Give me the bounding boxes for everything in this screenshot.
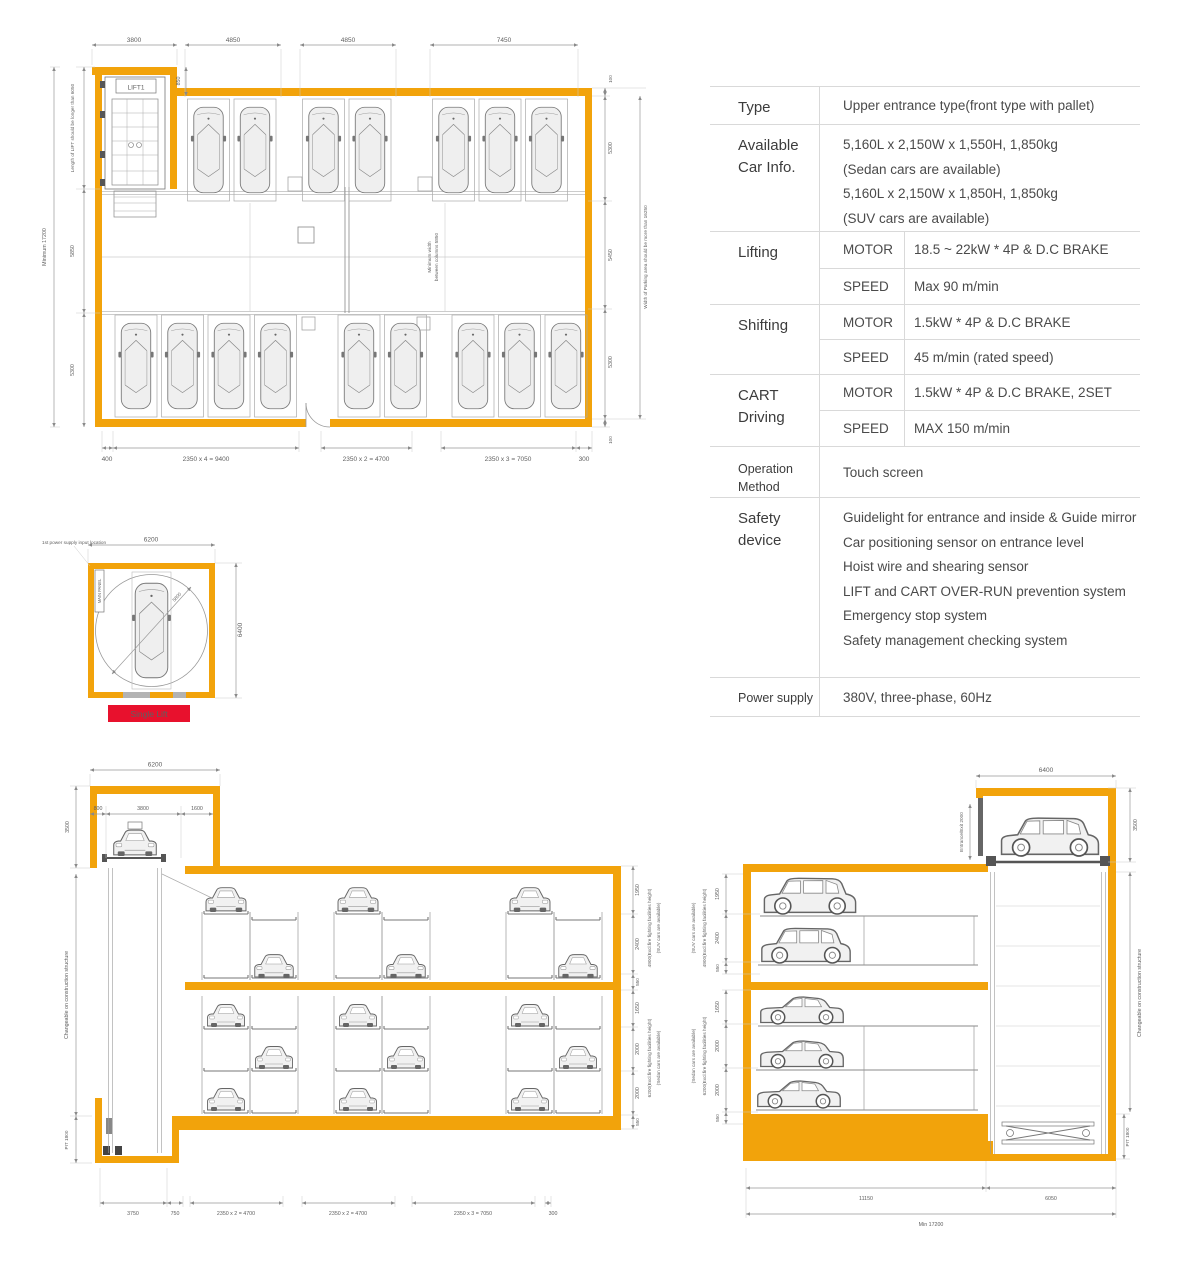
band-note: 4900(Excl.fire fighting facilities heigh… [702, 888, 707, 967]
spec-line: (SUV cars are available) [843, 207, 1140, 232]
spec-value: MAX 150 m/min [905, 411, 1140, 446]
car-icon [512, 1005, 549, 1028]
spec-label: Lifting [710, 232, 820, 304]
dim-label: Length of LIFT should be longer than 605… [70, 83, 75, 172]
dim-label: 6200 [148, 762, 163, 769]
dim-label: PIT 1800 [1125, 1127, 1130, 1146]
dim-label: Min 17200 [919, 1222, 944, 1228]
aisle-note: between columns 5850 [434, 233, 439, 282]
car-icon [208, 1089, 245, 1112]
spec-value: 18.5 ~ 22kW * 4P & D.C BRAKE [905, 232, 1140, 268]
dim-label: 550 [635, 1118, 640, 1126]
band-note: 4900(Excl.fire fighting facilities heigh… [647, 888, 652, 967]
car-icon [387, 955, 425, 978]
spec-subkey: SPEED [820, 411, 905, 446]
spec-subkey: SPEED [820, 340, 905, 374]
car-icon [761, 997, 844, 1024]
dim-label: 2350 x 2 = 4700 [343, 456, 390, 463]
dim-label: 2350 x 2 = 4700 [217, 1211, 255, 1217]
side-note: Changeable on construction structure [64, 951, 70, 1039]
dim-label: 1650 [635, 1002, 641, 1014]
car-icon [256, 1047, 293, 1070]
dim-label: 550 [635, 978, 640, 986]
power-note: 1st power supply input location [42, 540, 106, 545]
table-subrow: MOTOR 1.5kW * 4P & D.C BRAKE, 2SET [820, 375, 1140, 410]
car-icon [208, 1005, 245, 1028]
spec-subkey: SPEED [820, 269, 905, 305]
car-icon [758, 1081, 841, 1108]
spec-label: Type [710, 87, 820, 124]
dim-label: 3800 [127, 37, 142, 44]
table-row: CART Driving MOTOR 1.5kW * 4P & D.C BRAK… [710, 374, 1140, 446]
spec-label: CART Driving [710, 375, 820, 446]
car-icon [764, 878, 855, 914]
dim-label: 2350 x 2 = 4700 [329, 1211, 367, 1217]
floor-plan-drawing: LIFT1 3800 4850 4850 7450 850 Length of … [40, 15, 680, 490]
table-row: Type Upper entrance type(front type with… [710, 86, 1140, 124]
car-icon [340, 1089, 377, 1112]
table-row: Operation Method Touch screen [710, 446, 1140, 497]
spec-value: Touch screen [820, 447, 1140, 497]
spec-label: Operation Method [710, 447, 820, 497]
spec-line: Guidelight for entrance and inside & Gui… [843, 506, 1140, 531]
car-icon [455, 323, 490, 409]
spec-value: Max 90 m/min [905, 269, 1140, 305]
car-icon [341, 323, 376, 409]
dim-label: 400 [102, 456, 113, 463]
table-subrow: SPEED MAX 150 m/min [820, 410, 1140, 446]
spec-line: Hoist wire and shearing sensor [843, 555, 1140, 580]
spec-label: Available Car Info. [710, 125, 820, 231]
parking-system-spec-sheet: LIFT1 3800 4850 4850 7450 850 Length of … [0, 0, 1177, 1266]
dim-label: 5450 [608, 249, 614, 261]
spec-label: Safety device [710, 498, 820, 677]
band-note: (Sedan cars are available) [691, 1028, 696, 1083]
spec-value: 5,160L x 2,150W x 1,550H, 1,850kg (Sedan… [820, 125, 1140, 231]
car-icon [482, 107, 517, 193]
car-icon [548, 323, 583, 409]
dim-label: 3500 [1133, 819, 1139, 831]
dim-label: 1950 [635, 884, 641, 896]
left-elevation-drawing: 6200 800 3800 1600 3500 Changeable on co… [40, 748, 690, 1248]
dim-label: 6400 [237, 622, 244, 637]
spec-value: 1.5kW * 4P & D.C BRAKE [905, 305, 1140, 339]
dim-label: 800 [94, 806, 103, 812]
car-icon [510, 888, 550, 912]
dim-label: 2000 [715, 1084, 721, 1096]
dim-label: 2400 [635, 938, 641, 950]
dim-label: 7450 [497, 37, 512, 44]
car-icon [388, 323, 423, 409]
dim-label: 11150 [859, 1196, 873, 1202]
band-note: (Sedan cars are available) [656, 1030, 661, 1085]
dim-label: 2350 x 3 = 7050 [485, 456, 532, 463]
car-icon [114, 830, 157, 856]
table-row: Available Car Info. 5,160L x 2,150W x 1,… [710, 124, 1140, 231]
dim-label: 3500 [65, 821, 71, 833]
table-subrow: SPEED 45 m/min (rated speed) [820, 339, 1140, 374]
dim-label: 850 [176, 77, 182, 86]
spec-value: 1.5kW * 4P & D.C BRAKE, 2SET [905, 375, 1140, 410]
car-icon [165, 323, 200, 409]
spec-line: Emergency stop system [843, 604, 1140, 629]
spec-line: (Sedan cars are available) [843, 158, 1140, 183]
car-icon [255, 955, 293, 978]
dim-label: 2350 x 3 = 7050 [454, 1211, 492, 1217]
table-subrow: MOTOR 1.5kW * 4P & D.C BRAKE [820, 305, 1140, 339]
dim-label: 5300 [70, 364, 76, 376]
car-icon [388, 1047, 425, 1070]
car-icon [559, 955, 597, 978]
left-elevation-lines [109, 868, 162, 1153]
dim-label: 4850 [226, 37, 241, 44]
single-lift-drawing: 6200 6400 5800 MAIN PANEL 1st power supp… [40, 528, 310, 733]
car-icon [206, 888, 246, 912]
table-row: Power supply 380V, three-phase, 60Hz [710, 677, 1140, 716]
spec-label: Shifting [710, 305, 820, 374]
car-icon [338, 888, 378, 912]
car-icon [340, 1005, 377, 1028]
right-elevation-drawing: 6400 Entrance/Exit 2000 3500 Changeable … [678, 756, 1177, 1256]
spec-value: 380V, three-phase, 60Hz [820, 678, 1140, 716]
spec-value: Upper entrance type(front type with pall… [820, 87, 1140, 124]
car-icon [191, 107, 226, 193]
table-row: Lifting MOTOR 18.5 ~ 22kW * 4P & D.C BRA… [710, 231, 1140, 304]
car-icon [118, 323, 153, 409]
dim-label: 5300 [608, 356, 614, 368]
dim-label: 1600 [191, 806, 203, 812]
floor-plan-lines [102, 187, 585, 315]
spec-line: Car positioning sensor on entrance level [843, 531, 1140, 556]
car-icon [258, 323, 293, 409]
dim-label: 300 [549, 1211, 558, 1217]
dim-label: 5850 [70, 245, 76, 257]
car-icon [762, 928, 850, 963]
floor-plan-parking-stalls [115, 99, 587, 417]
dim-label: 1950 [715, 888, 721, 900]
dim-label: 6400 [1039, 767, 1054, 774]
dim-label: Minimum 17200 [42, 228, 48, 266]
dim-label: Width of Parking area should be more tha… [643, 205, 648, 309]
dim-label: 100 [608, 75, 613, 83]
dim-label: 550 [715, 1114, 720, 1122]
banner-label: Single Lift [130, 709, 168, 719]
car-icon [502, 323, 537, 409]
car-icon [1002, 818, 1099, 856]
spec-subkey: MOTOR [820, 375, 905, 410]
spec-label: Power supply [710, 678, 820, 716]
spec-subkey: MOTOR [820, 305, 905, 339]
entrance-note: Entrance/Exit 2000 [959, 812, 964, 852]
car-icon [436, 107, 471, 193]
dim-label: 2000 [635, 1043, 641, 1055]
dim-label: 2350 x 4 = 9400 [183, 456, 230, 463]
lift-label: LIFT1 [128, 85, 145, 92]
side-note: Changeable on construction structure [1137, 949, 1143, 1037]
dim-label: 300 [579, 456, 590, 463]
table-row: Shifting MOTOR 1.5kW * 4P & D.C BRAKE SP… [710, 304, 1140, 374]
car-icon [306, 107, 341, 193]
aisle-note: Minimum width [427, 241, 432, 273]
dim-label: 750 [171, 1211, 180, 1217]
dim-label: 5300 [608, 142, 614, 154]
spec-line: 5,160L x 2,150W x 1,550H, 1,850kg [843, 133, 1140, 158]
dim-label: 2000 [635, 1087, 641, 1099]
dim-label: 2000 [715, 1040, 721, 1052]
main-panel-label: MAIN PANEL [97, 578, 102, 603]
car-icon [211, 323, 246, 409]
dim-label: 5800 [172, 591, 183, 602]
table-subrow: SPEED Max 90 m/min [820, 268, 1140, 305]
car-icon [352, 107, 387, 193]
band-note: 6200(Excl.fire fighting facilities heigh… [702, 1016, 707, 1095]
spec-line: LIFT and CART OVER-RUN prevention system [843, 580, 1140, 605]
spec-table: Type Upper entrance type(front type with… [710, 86, 1140, 717]
car-icon [560, 1047, 597, 1070]
dim-label: 4850 [341, 37, 356, 44]
dim-label: PIT 1800 [64, 1130, 69, 1149]
car-icon [237, 107, 272, 193]
dim-label: 550 [715, 964, 720, 972]
car-icon [529, 107, 564, 193]
dim-label: 6050 [1045, 1196, 1057, 1202]
band-note: (SUV cars are available) [656, 902, 661, 953]
car-icon [512, 1089, 549, 1112]
spec-line: Safety management checking system [843, 629, 1140, 654]
dim-label: 3800 [137, 806, 149, 812]
spec-line: 5,160L x 2,150W x 1,850H, 1,850kg [843, 182, 1140, 207]
dim-label: 2400 [715, 932, 721, 944]
spec-value: Guidelight for entrance and inside & Gui… [820, 498, 1140, 677]
car-icon [761, 1041, 844, 1068]
dim-label: 1650 [715, 1001, 721, 1013]
table-row: Safety device Guidelight for entrance an… [710, 497, 1140, 677]
dim-label: 6200 [144, 537, 159, 544]
band-note: (SUV cars are available) [691, 902, 696, 953]
table-subrow: MOTOR 18.5 ~ 22kW * 4P & D.C BRAKE [820, 232, 1140, 268]
spec-subkey: MOTOR [820, 232, 905, 268]
band-note: 6200(Excl.fire fighting facilities heigh… [647, 1018, 652, 1097]
dim-label: 100 [608, 436, 613, 444]
spec-value: 45 m/min (rated speed) [905, 340, 1140, 374]
dim-label: 3750 [127, 1211, 139, 1217]
